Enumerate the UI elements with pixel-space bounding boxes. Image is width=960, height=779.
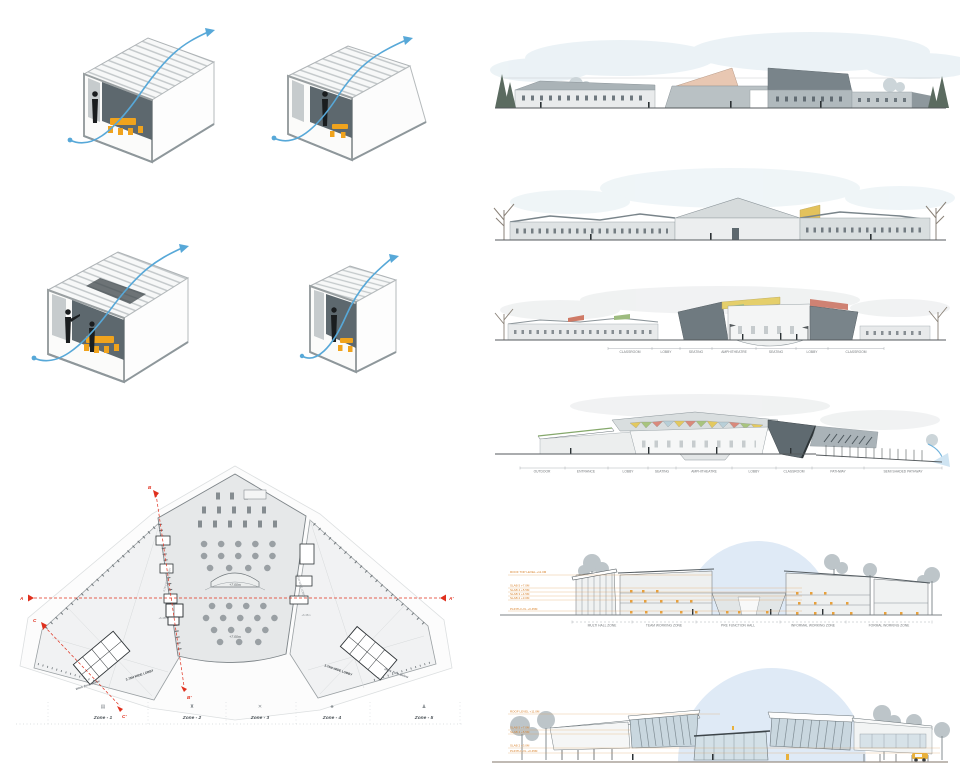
box-4 bbox=[300, 254, 399, 372]
box-3 bbox=[32, 244, 189, 382]
room-label: AMPHITHEATRE bbox=[721, 350, 747, 354]
zone-5-label: Zone - 5 bbox=[414, 715, 434, 721]
room-label: LOBBY bbox=[661, 350, 673, 354]
section-marker-c-prime: C' bbox=[122, 714, 127, 719]
axon-module-2 bbox=[268, 26, 438, 171]
canopy-columns bbox=[562, 749, 612, 760]
zone-3-label: Zone - 3 bbox=[250, 715, 270, 721]
section-marker-a: A bbox=[19, 596, 23, 601]
room-label: CLASSROOM bbox=[845, 350, 866, 354]
section-marker-a-prime: A' bbox=[448, 596, 454, 601]
axon-module-2-drawing bbox=[268, 26, 438, 171]
level-label: PLINTH LVL +0.45M bbox=[510, 749, 538, 753]
room-label: LOBBY bbox=[623, 470, 635, 474]
zone-label: INFORMAL WORKING ZONE bbox=[791, 624, 836, 628]
water-feature bbox=[928, 444, 950, 467]
zone-3-icon: ✕ bbox=[258, 704, 262, 710]
zone-2-label: Zone - 2 bbox=[182, 715, 202, 721]
roof-figure bbox=[732, 726, 734, 730]
entry-glazing bbox=[694, 732, 768, 760]
room-label: SEATING bbox=[655, 470, 670, 474]
box-2 bbox=[272, 36, 426, 160]
sloped-ground-line bbox=[816, 455, 942, 462]
room-label: LOBBY bbox=[807, 350, 819, 354]
room-label: ENTRANCE bbox=[577, 470, 596, 474]
section-5-drawing: ROOF TOP LEVEL +11.0M SLAB 5 +7.0M SLAB … bbox=[480, 515, 960, 630]
zone-1-icon: ▤ bbox=[101, 704, 106, 710]
section-3-drawing: CLASSROOM LOBBY SEATING AMPHITHEATRE SEA… bbox=[480, 282, 960, 357]
zone-1-label: Zone - 1 bbox=[93, 715, 113, 721]
box-1 bbox=[68, 28, 215, 162]
amphitheatre-bowl bbox=[736, 340, 804, 346]
dome-mask bbox=[480, 762, 960, 779]
level-label: +7.00m bbox=[229, 635, 241, 639]
floor-plan-drawing: A A' B B' C C' +7.00m +7.00m +6.45m +6.4… bbox=[8, 458, 468, 758]
room-label: SEATING bbox=[769, 350, 784, 354]
section-4: OUTDOOR ENTRANCE LOBBY SEATING AMPHITHEA… bbox=[480, 390, 960, 475]
section-4-drawing: OUTDOOR ENTRANCE LOBBY SEATING AMPHITHEA… bbox=[480, 390, 960, 475]
door-panel bbox=[314, 290, 324, 340]
elevation-1 bbox=[480, 28, 960, 128]
level-label: SLAB 4 +5.5M bbox=[510, 730, 530, 734]
room-label: CLASSROOM bbox=[783, 470, 804, 474]
axon-module-3 bbox=[28, 236, 208, 391]
elevation-2-drawing bbox=[480, 158, 960, 258]
level-label: +6.45m bbox=[158, 616, 168, 620]
door-panel bbox=[52, 294, 66, 340]
room-label: CLASSROOM bbox=[619, 350, 640, 354]
level-label: ROOF TOP LEVEL +11.0M bbox=[510, 570, 547, 574]
level-label: +7.00m bbox=[229, 583, 241, 587]
elevation-6-drawing: ROOF LEVEL +11.0M SLAB 5 +7.0M SLAB 4 +5… bbox=[480, 650, 960, 779]
floor-plan: A A' B B' C C' +7.00m +7.00m +6.45m +6.4… bbox=[8, 458, 468, 758]
zone-2-icon: ♜ bbox=[190, 704, 194, 710]
entry-door bbox=[786, 754, 789, 760]
axon-module-4 bbox=[292, 240, 412, 385]
door-panel bbox=[292, 80, 304, 122]
elevation-6: ROOF LEVEL +11.0M SLAB 5 +7.0M SLAB 4 +5… bbox=[480, 650, 960, 779]
room-label-strip: OUTDOOR ENTRANCE LOBBY SEATING AMPHITHEA… bbox=[520, 467, 942, 474]
dome-mask bbox=[480, 615, 960, 630]
room-label: PATHWAY bbox=[830, 470, 846, 474]
section-3: CLASSROOM LOBBY SEATING AMPHITHEATRE SEA… bbox=[480, 282, 960, 357]
room-label: AMPHITHEATRE bbox=[691, 470, 717, 474]
presentation-sheet: A A' B B' C C' +7.00m +7.00m +6.45m +6.4… bbox=[0, 0, 960, 779]
room-label: SEMI SHADED PATHWAY bbox=[883, 470, 923, 474]
sunken-amphitheatre bbox=[680, 454, 730, 460]
level-label: PLINTH LVL +0.45M bbox=[510, 607, 538, 611]
level-label: ROOF LEVEL +11.0M bbox=[510, 710, 540, 714]
level-label: SLAB 2 +3.0M bbox=[510, 596, 530, 600]
zone-label: FORMAL WORKING ZONE bbox=[869, 624, 911, 628]
elevation-2 bbox=[480, 158, 960, 258]
axon-module-1-drawing bbox=[62, 22, 232, 172]
zone-label: TEAM WORKING ZONE bbox=[646, 624, 683, 628]
level-labels: ROOF TOP LEVEL +11.0M SLAB 5 +7.0M SLAB … bbox=[510, 570, 547, 611]
section-marker-b: B bbox=[148, 485, 152, 490]
room-label: LOBBY bbox=[749, 470, 761, 474]
level-label: +6.45m bbox=[301, 613, 311, 617]
room-label-strip: CLASSROOM LOBBY SEATING AMPHITHEATRE SEA… bbox=[608, 347, 884, 354]
room-label: SEATING bbox=[689, 350, 704, 354]
stage-table bbox=[244, 490, 266, 499]
zone-label: MULTI HALL ZONE bbox=[588, 624, 618, 628]
zone-label: PRE FUNCTION HALL bbox=[721, 624, 755, 628]
axon-module-3-drawing bbox=[28, 236, 208, 391]
axon-module-1 bbox=[62, 22, 232, 172]
zone-5-icon: ♟ bbox=[422, 704, 426, 710]
level-label: SLAB 2 +3.0M bbox=[510, 744, 530, 748]
axon-module-4-drawing bbox=[292, 240, 412, 385]
elevation-1-drawing bbox=[480, 28, 960, 128]
room-label: OUTDOOR bbox=[534, 470, 551, 474]
car bbox=[912, 753, 928, 762]
section-5: ROOF TOP LEVEL +11.0M SLAB 5 +7.0M SLAB … bbox=[480, 515, 960, 630]
zone-4-label: Zone - 4 bbox=[322, 715, 342, 721]
